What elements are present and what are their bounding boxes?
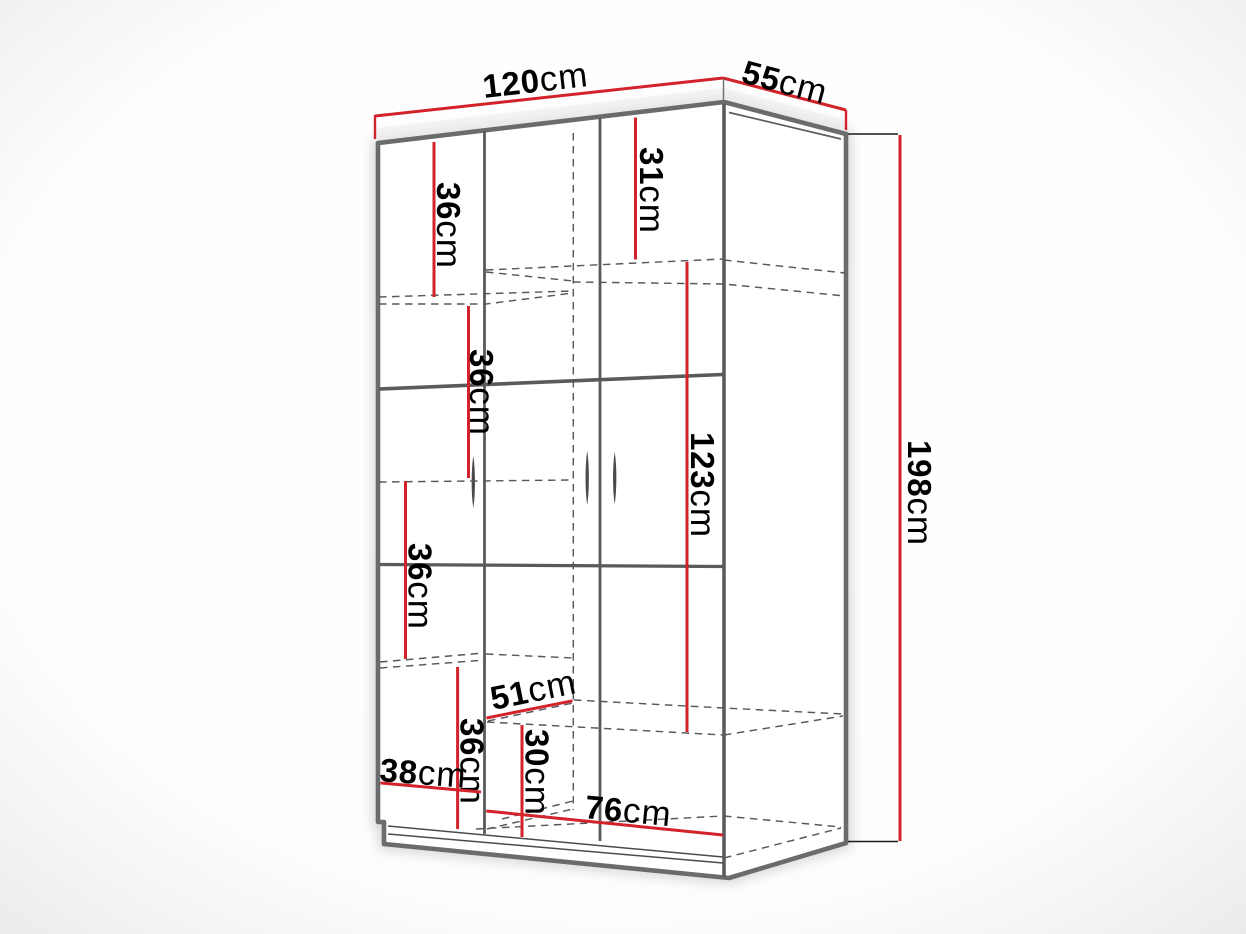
- svg-text:38cm: 38cm: [378, 750, 468, 796]
- svg-text:198cm: 198cm: [900, 440, 939, 546]
- svg-text:30cm: 30cm: [518, 729, 557, 816]
- svg-text:36cm: 36cm: [462, 349, 501, 436]
- svg-text:31cm: 31cm: [632, 147, 671, 234]
- svg-text:36cm: 36cm: [429, 182, 468, 269]
- svg-text:36cm: 36cm: [401, 543, 440, 630]
- svg-text:123cm: 123cm: [683, 432, 722, 538]
